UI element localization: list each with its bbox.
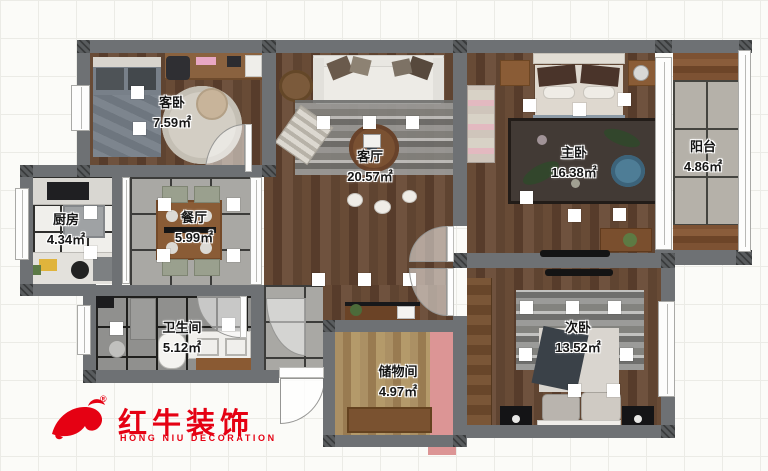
wall-post — [323, 435, 335, 447]
wall-bathroom-right — [251, 285, 264, 370]
sofa — [313, 55, 444, 105]
room-name: 客卧 — [127, 93, 217, 113]
wall-post — [661, 253, 675, 268]
floor-pouf — [347, 193, 363, 207]
ceiling-light-marker — [568, 209, 581, 222]
wall-storage-top — [323, 320, 460, 332]
door-leaf-guest — [245, 124, 252, 172]
wall-post — [736, 250, 752, 265]
room-label-storage-room: 储物间 4.97㎡ — [353, 362, 443, 402]
ceiling-light-marker — [520, 301, 533, 314]
wall-secondary-right-upper — [661, 268, 675, 301]
wall-post — [20, 284, 33, 296]
cooktop — [47, 182, 89, 200]
room-name: 次卧 — [533, 318, 623, 338]
nightstand — [500, 60, 530, 86]
ceiling-light-marker — [520, 191, 533, 204]
ceiling-light-marker — [523, 99, 536, 112]
room-label-dining-room: 餐厅 5.99㎡ — [149, 208, 239, 248]
wall-post — [262, 40, 276, 53]
room-name: 餐厅 — [149, 208, 239, 228]
room-area: 16.38㎡ — [529, 163, 619, 183]
door-leaf-bathroom — [240, 296, 247, 338]
ceiling-light-marker — [317, 116, 330, 129]
ceiling-light-marker — [110, 322, 123, 335]
wall-post — [655, 40, 672, 53]
ceiling-light-marker — [573, 103, 586, 116]
speaker-dot — [634, 415, 642, 423]
storage-pink-stub — [428, 447, 456, 455]
plant — [350, 304, 362, 316]
floor-pouf — [374, 200, 391, 214]
wall-top — [77, 40, 752, 53]
master-roll-pillow — [583, 86, 615, 99]
air-conditioner — [540, 250, 610, 257]
room-area: 5.99㎡ — [149, 228, 239, 248]
speaker-dot — [512, 415, 520, 423]
wall-post — [77, 165, 90, 177]
room-name: 厨房 — [21, 210, 111, 230]
wall-post — [262, 165, 276, 177]
sink-basin — [225, 338, 247, 356]
wall-central-upper — [453, 53, 467, 226]
ceiling-light-marker — [607, 384, 620, 397]
brand-logo: ® 红牛装饰 HONG NIU DECORATION — [48, 394, 110, 449]
console-paper — [397, 306, 415, 319]
room-label-secondary-bedroom: 次卧 13.52㎡ — [533, 318, 623, 358]
kitchen-sink — [71, 261, 89, 279]
ceiling-light-marker — [227, 249, 240, 262]
wall-secondary-right-lower — [661, 397, 675, 428]
room-name: 客厅 — [325, 147, 415, 167]
window-guest-bedroom — [71, 85, 90, 131]
wall-post — [453, 40, 467, 53]
nightstand — [628, 60, 656, 86]
room-area: 4.86㎡ — [658, 157, 748, 177]
wall-post — [323, 320, 335, 332]
guest-office-chair — [166, 56, 190, 80]
bath-bench — [196, 358, 252, 370]
door-leaf-master — [447, 226, 454, 262]
ceiling-light-marker — [613, 208, 626, 221]
door-swing-entry — [280, 378, 325, 424]
secondary-pillow — [542, 394, 580, 422]
wall-kitchen-dining-divider — [112, 177, 122, 285]
room-area: 4.97㎡ — [353, 382, 443, 402]
ceiling-light-marker — [566, 301, 579, 314]
wall-post — [83, 370, 96, 383]
opening-dining-living — [250, 177, 262, 285]
sofa-armrest — [313, 58, 324, 103]
plant — [623, 233, 637, 247]
kitchen-appliance — [93, 257, 112, 281]
dining-chair — [194, 259, 220, 276]
window-secondary-bedroom — [658, 301, 675, 397]
wall-post — [20, 165, 33, 177]
guest-pillow — [96, 68, 124, 90]
door-leaf-secondary — [447, 268, 454, 316]
side-table — [279, 70, 313, 102]
room-label-bathroom: 卫生间 5.12㎡ — [137, 318, 227, 358]
guest-desk-pad — [196, 57, 216, 65]
ceiling-light-marker — [406, 116, 419, 129]
wall-secondary-bottom — [465, 425, 675, 438]
master-headboard — [533, 53, 625, 64]
ceiling-light-marker — [358, 273, 371, 286]
wall-post — [453, 253, 467, 268]
guest-laptop — [227, 56, 241, 67]
room-label-living-room: 客厅 20.57㎡ — [325, 147, 415, 187]
room-label-balcony: 阳台 4.86㎡ — [658, 137, 748, 177]
master-dresser — [600, 228, 652, 252]
room-name: 卫生间 — [137, 318, 227, 338]
window-bathroom — [77, 305, 91, 355]
kitchen-tray — [39, 259, 57, 271]
kitchen-counter-top — [33, 178, 112, 205]
table-lamp — [633, 65, 649, 81]
master-wardrobe-rack — [467, 85, 495, 163]
wall-post — [453, 435, 466, 447]
room-label-kitchen: 厨房 4.34㎡ — [21, 210, 111, 250]
room-area: 4.34㎡ — [21, 230, 111, 250]
sliding-door-kitchen — [122, 177, 130, 284]
kitchen-counter-bottom — [33, 252, 112, 284]
wall-storage-bottom — [323, 435, 466, 447]
wall-guest-living-divider — [262, 53, 276, 177]
coffee-table-tray — [363, 134, 381, 148]
brand-name-en: HONG NIU DECORATION — [120, 433, 277, 443]
room-area: 7.59㎡ — [127, 113, 217, 133]
wall-post — [77, 40, 90, 53]
floor-pouf — [402, 190, 417, 203]
room-name: 储物间 — [353, 362, 443, 382]
wall-bathroom-top — [96, 285, 253, 296]
air-conditioner — [545, 269, 613, 276]
room-area: 13.52㎡ — [533, 338, 623, 358]
shower-stand — [108, 340, 126, 358]
ceiling-light-marker — [608, 301, 621, 314]
room-area: 20.57㎡ — [325, 167, 415, 187]
guest-bed-headboard — [93, 57, 161, 67]
registered-trademark: ® — [100, 394, 107, 404]
wall-mid-horizontal — [20, 165, 276, 177]
wall-storage-left — [323, 332, 335, 447]
dining-chair — [194, 186, 220, 203]
guest-shelf — [245, 55, 262, 77]
floor-balcony-wood-top — [673, 53, 738, 80]
storage-cabinet — [347, 407, 432, 433]
sofa-armrest — [433, 58, 444, 103]
room-area: 5.12㎡ — [137, 338, 227, 358]
ceiling-light-marker — [568, 384, 581, 397]
room-label-master-bedroom: 主卧 16.38㎡ — [529, 143, 619, 183]
ceiling-light-marker — [519, 348, 532, 361]
master-pillow — [580, 64, 620, 87]
floor-balcony-wood-bottom — [673, 225, 738, 250]
floorplan-canvas: 客卧 7.59㎡ 客厅 20.57㎡ 主卧 16.38㎡ 阳台 4.86㎡ 厨房… — [0, 0, 768, 471]
secondary-wardrobe — [467, 278, 492, 425]
room-name: 主卧 — [529, 143, 619, 163]
ceiling-light-marker — [157, 249, 170, 262]
door-leaf-entry — [279, 367, 324, 378]
ceiling-light-marker — [363, 116, 376, 129]
ceiling-light-marker — [618, 93, 631, 106]
master-roll-pillow — [543, 86, 575, 99]
room-label-guest-bedroom: 客卧 7.59㎡ — [127, 93, 217, 133]
ceiling-light-marker — [312, 273, 325, 286]
wall-post — [661, 425, 675, 438]
master-pillow — [537, 64, 577, 87]
wall-bathroom-bottom — [83, 370, 279, 383]
room-name: 阳台 — [658, 137, 748, 157]
